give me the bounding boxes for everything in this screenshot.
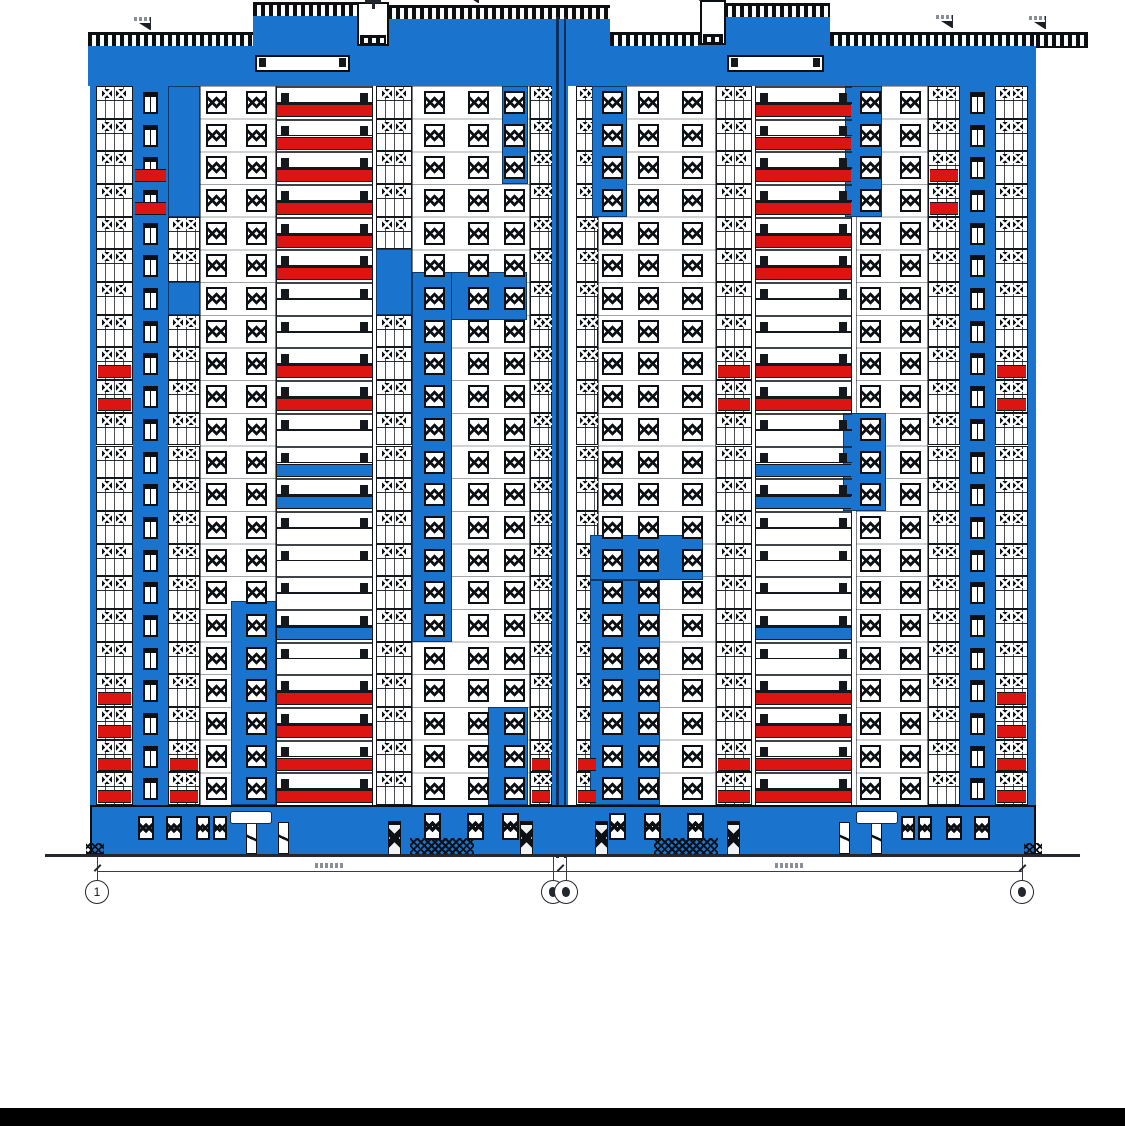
apartment-window [424,124,445,147]
parapet-band [388,19,610,86]
window-sash-icon [382,743,392,752]
window-sash-icon [946,677,956,686]
window-sash-icon [396,318,406,327]
apartment-window [468,91,489,114]
window-sash-icon [116,645,126,654]
window-sash-icon [1000,154,1010,163]
window-sash-icon [382,350,392,359]
apartment-window [468,287,489,310]
apartment-window [682,320,703,343]
railing-line [276,560,373,562]
pier-window [143,255,158,277]
apartment-window [900,156,921,179]
apartment-window [424,549,445,572]
apartment-window [900,124,921,147]
window-sash-icon [1000,318,1010,327]
window-sash-icon [1013,743,1023,752]
apartment-window [206,418,227,441]
window-sash-icon [396,579,406,588]
window-sash-icon [116,677,126,686]
apartment-window [900,614,921,637]
window-sash-icon [382,318,392,327]
window-sash-icon [933,318,943,327]
window-sash-icon [102,416,112,425]
extension-line [553,856,554,880]
apartment-window [900,451,921,474]
apartment-window [468,222,489,245]
pier-window [143,125,158,147]
floor-slab-line [755,576,852,578]
apartment-window [504,745,525,768]
red-accent-panel [532,758,550,771]
floor-slab-line [276,380,373,382]
window-sash-icon [946,710,956,719]
window-sash-icon [933,743,943,752]
window-sash-icon [946,122,956,131]
window-sash-icon [736,154,746,163]
apartment-window [682,777,703,800]
apartment-window [638,124,659,147]
window-sash-icon [173,775,183,784]
floor-slab-line [755,772,852,774]
floor-slab-line [276,446,373,448]
window-sash-icon [102,677,112,686]
window-sash-icon [186,350,196,359]
apartment-window [638,385,659,408]
window-sash-icon [186,252,196,261]
apartment-window [900,254,921,277]
floor-slab-line [755,740,852,742]
window-sash-icon [946,449,956,458]
floor-slab-line [755,347,852,349]
window-sash-icon [946,743,956,752]
window-sash-icon [946,350,956,359]
pier-window [970,746,985,768]
apartment-window [468,777,489,800]
balcony-spandrel [756,464,851,477]
balcony-spandrel [277,398,372,411]
window-sash-icon [116,252,126,261]
elevation-flag-stem [1045,16,1047,29]
window-sash-icon [933,449,943,458]
apartment-window [860,418,881,441]
window-sash-icon [588,449,598,458]
window-sash-icon [933,383,943,392]
window-sash-icon [186,449,196,458]
apartment-window [424,679,445,702]
apartment-window [602,156,623,179]
balcony-spandrel [756,627,851,640]
window-sash-icon [722,677,732,686]
window-sash-icon [722,579,732,588]
apartment-window [860,352,881,375]
balcony-spandrel [756,692,851,705]
window-sash-icon [396,547,406,556]
window-sash-icon [116,710,126,719]
window-sash-icon [396,710,406,719]
attic-window [255,55,350,72]
window-sash-icon [946,775,956,784]
floor-slab-line [276,184,373,186]
red-accent-panel [997,758,1026,771]
balcony-spandrel [277,267,372,280]
window-sash-icon [1000,612,1010,621]
apartment-window [468,124,489,147]
apartment-window [602,189,623,212]
apartment-window [638,91,659,114]
apartment-window [246,222,267,245]
apartment-window [860,679,881,702]
pier-window [143,288,158,310]
apartment-window [424,254,445,277]
floor-slab-line [755,184,852,186]
apartment-window [638,287,659,310]
floor-slab-line [755,413,852,415]
window-sash-icon [1013,187,1023,196]
window-sash-icon [173,677,183,686]
red-accent-panel [997,398,1026,411]
window-sash-icon [173,481,183,490]
window-sash-icon [396,220,406,229]
pier-window [970,713,985,735]
elevation-text [1029,16,1045,20]
parapet-band [830,46,1036,86]
blue-facade-patch [168,282,200,315]
apartment-window [900,418,921,441]
floor-slab-line [755,86,852,88]
window-sash-icon [382,775,392,784]
floor-slab-line [276,642,373,644]
apartment-window [860,712,881,735]
window-sash-icon [1013,154,1023,163]
entrance-door [246,822,257,854]
window-sash-icon [116,547,126,556]
window-sash-icon [736,318,746,327]
window-sash-icon [722,187,732,196]
window-sash-icon [736,743,746,752]
window-sash-icon [396,122,406,131]
railing-line [755,527,852,529]
window-sash-icon [588,383,598,392]
ground-window [166,816,182,840]
apartment-window [860,549,881,572]
red-accent-panel [718,790,750,803]
window-sash-icon [1000,89,1010,98]
entrance-door [520,821,533,855]
blue-facade-patch [376,249,412,315]
window-sash-icon [186,775,196,784]
window-sash-icon [588,318,598,327]
attic-window-post [731,58,738,67]
railing-line [755,429,852,431]
apartment-window [246,777,267,800]
window-sash-icon [722,710,732,719]
apartment-window [246,679,267,702]
apartment-window [206,516,227,539]
window-sash-icon [102,154,112,163]
window-sash-icon [933,285,943,294]
apartment-window [504,451,525,474]
apartment-window [638,777,659,800]
red-accent-panel [930,202,958,215]
ground-window [974,816,990,840]
window-sash-icon [722,645,732,654]
window-sash-icon [382,416,392,425]
window-sash-icon [1013,220,1023,229]
apartment-window [468,451,489,474]
apartment-window [504,679,525,702]
window-sash-icon [736,350,746,359]
apartment-window [900,189,921,212]
window-sash-icon [173,449,183,458]
floor-slab-line [276,315,373,317]
window-sash-icon [186,481,196,490]
pier-window [970,648,985,670]
apartment-window [504,287,525,310]
window-sash-icon [382,187,392,196]
window-sash-icon [736,220,746,229]
entrance-door [871,822,882,854]
attic-window [727,55,824,72]
apartment-window [424,91,445,114]
window-sash-icon [382,514,392,523]
apartment-window [468,483,489,506]
apartment-window [504,418,525,441]
balcony-spandrel [277,790,372,803]
ground-window [196,816,210,840]
window-sash-icon [102,383,112,392]
apartment-window [246,189,267,212]
apartment-window [638,352,659,375]
window-sash-icon [382,710,392,719]
elevation-flag-icon [689,0,700,1]
attic-window-post [339,58,346,67]
facade-edge-strip [1028,86,1036,805]
apartment-window [424,418,445,441]
apartment-window [206,712,227,735]
apartment-window [900,549,921,572]
elevation-flag-icon [941,21,952,28]
floor-slab-line [755,511,852,513]
pier-window [970,255,985,277]
balcony-spandrel [277,202,372,215]
apartment-window [246,254,267,277]
window-sash-icon [933,416,943,425]
window-sash-icon [116,350,126,359]
apartment-window [682,254,703,277]
apartment-window [602,91,623,114]
window-sash-icon [736,122,746,131]
apartment-window [504,581,525,604]
joint-line [556,17,559,858]
floor-slab-line [755,609,852,611]
apartment-window [602,352,623,375]
ground-window [946,816,962,840]
apartment-window [860,516,881,539]
apartment-window [682,647,703,670]
apartment-window [246,320,267,343]
window-sash-icon [946,612,956,621]
apartment-window [468,385,489,408]
elevation-text [936,15,952,19]
window-sash-icon [946,514,956,523]
window-sash-icon [102,122,112,131]
window-sash-icon [116,416,126,425]
red-accent-panel [98,725,131,738]
parapet-band [88,46,253,86]
window-sash-icon [1000,187,1010,196]
apartment-window [682,712,703,735]
apartment-window [602,745,623,768]
window-sash-icon [542,645,552,654]
floor-slab-line [276,544,373,546]
elevation-flag-icon [139,23,150,30]
window-sash-icon [736,449,746,458]
window-sash-icon [542,449,552,458]
entrance-door [839,822,850,854]
apartment-window [246,745,267,768]
window-sash-icon [722,547,732,556]
apartment-window [900,581,921,604]
window-sash-icon [722,154,732,163]
window-sash-icon [542,710,552,719]
window-sash-icon [173,579,183,588]
window-sash-icon [722,416,732,425]
railing-line [276,592,373,594]
pier-window [143,386,158,408]
apartment-window [206,222,227,245]
window-sash-icon [722,449,732,458]
apartment-window [682,287,703,310]
window-sash-icon [1000,677,1010,686]
elevation-flag-stem [150,17,152,30]
axis-marker-3 [1010,880,1034,904]
balcony-spandrel [756,104,851,117]
window-sash-icon [102,350,112,359]
apartment-window [638,614,659,637]
floor-slab-line [276,707,373,709]
pier-window [143,615,158,637]
apartment-window [424,156,445,179]
window-sash-icon [116,220,126,229]
window-sash-icon [542,285,552,294]
red-accent-panel [98,692,131,705]
pier-window [970,223,985,245]
window-sash-icon [722,285,732,294]
balcony-spandrel [756,496,851,509]
balcony-spandrel [277,627,372,640]
floor-slab-line [276,609,373,611]
floor-slab-line [755,642,852,644]
window-sash-icon [396,645,406,654]
window-sash-icon [722,89,732,98]
window-sash-icon [1000,122,1010,131]
apartment-window [468,745,489,768]
window-sash-icon [1000,220,1010,229]
window-sash-icon [542,547,552,556]
apartment-window [206,745,227,768]
ground-window [467,813,484,840]
window-sash-icon [933,220,943,229]
window-sash-icon [382,547,392,556]
window-sash-icon [396,383,406,392]
window-sash-icon [736,416,746,425]
apartment-window [682,222,703,245]
red-accent-panel [98,758,131,771]
apartment-window [246,581,267,604]
window-sash-icon [933,481,943,490]
floor-slab-line [276,511,373,513]
apartment-window [682,614,703,637]
ground-window [424,813,441,840]
apartment-window [602,712,623,735]
apartment-window [424,385,445,408]
railing-line [755,592,852,594]
railing-line [755,298,852,300]
window-sash-icon [933,514,943,523]
window-sash-icon [1013,677,1023,686]
parapet-band [610,46,702,86]
apartment-window [682,549,703,572]
apartment-window [638,516,659,539]
window-sash-icon [542,743,552,752]
apartment-window [468,614,489,637]
apartment-window [206,777,227,800]
apartment-window [638,581,659,604]
pier-window [970,321,985,343]
parapet-band [698,45,728,86]
window-sash-icon [396,89,406,98]
window-sash-icon [588,220,598,229]
window-sash-icon [933,645,943,654]
window-sash-icon [588,350,598,359]
window-sash-icon [722,743,732,752]
window-sash-icon [102,775,112,784]
apartment-window [424,222,445,245]
window-sash-icon [1000,579,1010,588]
window-sash-icon [382,220,392,229]
apartment-window [638,451,659,474]
window-sash-icon [946,89,956,98]
apartment-window [468,712,489,735]
apartment-window [860,745,881,768]
dimension-text [775,863,803,868]
pier-window [143,321,158,343]
apartment-window [860,254,881,277]
pier-window [970,353,985,375]
balcony-spandrel [277,725,372,738]
pier-window [143,92,158,114]
window-sash-icon [173,645,183,654]
apartment-window [638,320,659,343]
window-sash-icon [173,743,183,752]
window-sash-icon [1000,383,1010,392]
apartment-window [860,777,881,800]
apartment-window [424,287,445,310]
balcony-spandrel [756,758,851,771]
apartment-window [638,222,659,245]
dimension-text [315,863,343,868]
apartment-window [206,451,227,474]
parapet-band [724,17,830,86]
floor-slab-line [276,576,373,578]
window-sash-icon [396,743,406,752]
apartment-window [682,516,703,539]
window-sash-icon [946,252,956,261]
parapet-band [253,16,360,86]
railing-line [276,527,373,529]
window-sash-icon [542,677,552,686]
